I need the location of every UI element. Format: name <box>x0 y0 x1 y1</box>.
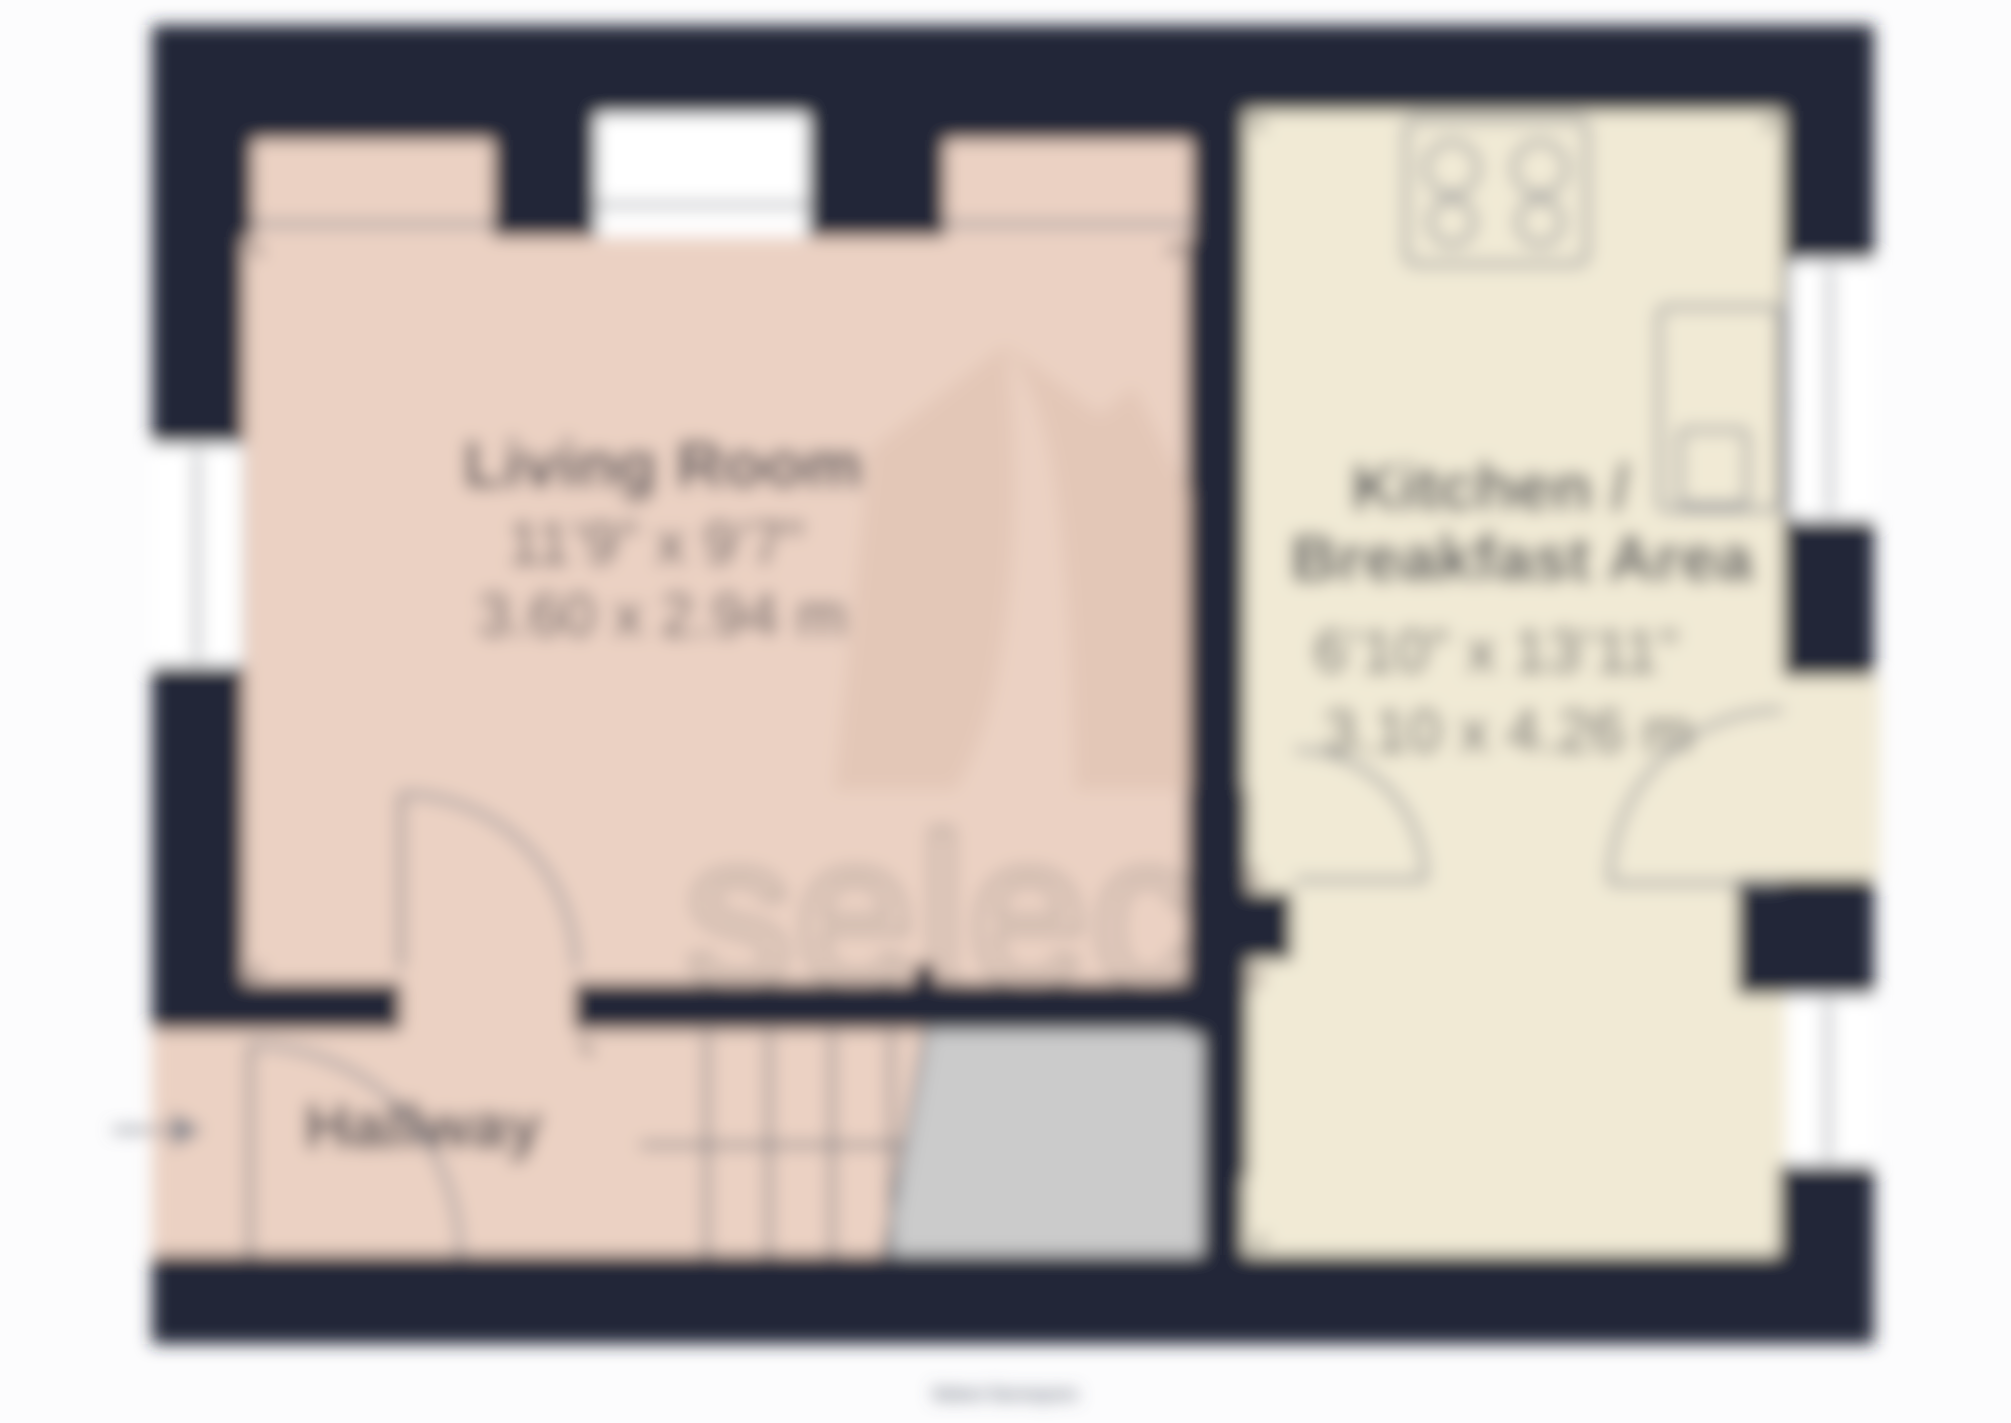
svg-text:Hallway: Hallway <box>304 1090 543 1162</box>
svg-text:3.10 x 4.26 m: 3.10 x 4.26 m <box>1323 697 1693 765</box>
svg-text:Select Surveyors: Select Surveyors <box>932 1384 1078 1404</box>
svg-text:Kitchen /: Kitchen / <box>1351 450 1630 524</box>
svg-text:3.60 x 2.94 m: 3.60 x 2.94 m <box>477 581 847 649</box>
svg-text:11’9” x 9’7”: 11’9” x 9’7” <box>507 509 804 577</box>
svg-text:6’10” x 13’11”: 6’10” x 13’11” <box>1313 617 1678 685</box>
svg-text:Living Room: Living Room <box>463 427 863 501</box>
svg-text:Breakfast Area: Breakfast Area <box>1290 521 1755 595</box>
